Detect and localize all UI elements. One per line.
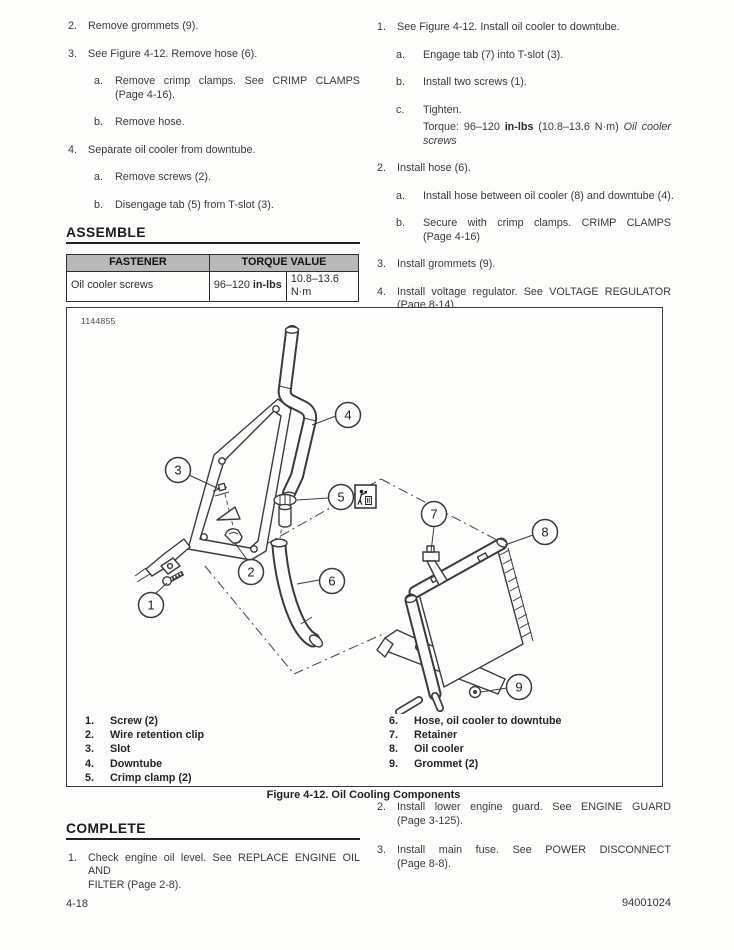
substep-line: Secure with crimp clamps. CRIMP CLAMPS: [423, 217, 671, 231]
step-line: (Page 8-8).: [397, 858, 671, 872]
step-install-hose: 2. Install hose (6).: [375, 162, 671, 176]
step-number: 4.: [68, 144, 77, 158]
legend-label: Oil cooler: [414, 742, 464, 756]
legend-number: 9.: [389, 757, 414, 771]
svg-text:4: 4: [344, 408, 351, 423]
legend-item: 6.Hose, oil cooler to downtube: [389, 714, 562, 728]
svg-text:8: 8: [541, 525, 548, 540]
document-number: 94001024: [375, 897, 671, 909]
step-number: 2.: [377, 162, 386, 176]
legend-item: 8.Oil cooler: [389, 742, 562, 756]
legend-number: 2.: [85, 728, 110, 742]
torque-us-range: 96–120: [214, 279, 253, 291]
assemble-section: ASSEMBLE FASTENER TORQUE VALUE Oil coole…: [66, 226, 360, 302]
torque-spec-line: Torque: 96–120 in-lbs (10.8–13.6 N·m) Oi…: [423, 121, 671, 148]
legend-number: 3.: [85, 742, 110, 756]
step-text: Install main fuse. See POWER DISCONNECT …: [397, 844, 671, 871]
legend-item: 7.Retainer: [389, 728, 562, 742]
substep-letter: a.: [396, 49, 405, 63]
discard-component-icon: [355, 485, 376, 508]
step-text: Remove grommets (9).: [88, 20, 360, 34]
step-line: Install voltage regulator. See VOLTAGE R…: [397, 286, 671, 300]
substep-letter: a.: [94, 171, 103, 185]
substep-text: Remove hose.: [115, 116, 360, 130]
step-number: 4.: [377, 286, 386, 300]
svg-text:6: 6: [328, 574, 335, 589]
figure-callout-6: 6: [320, 569, 345, 594]
step-text: Check engine oil level. See REPLACE ENGI…: [88, 852, 360, 893]
svg-text:9: 9: [515, 680, 522, 695]
legend-label: Retainer: [414, 728, 457, 742]
legend-number: 8.: [389, 742, 414, 756]
legend-label: Crimp clamp (2): [110, 771, 192, 785]
torque-table-header-fastener: FASTENER: [67, 254, 210, 271]
oil-hose: [271, 539, 325, 649]
figure-caption: Figure 4-12. Oil Cooling Components: [66, 789, 661, 801]
substep-line: (Page 4-16).: [115, 89, 360, 103]
legend-label: Hose, oil cooler to downtube: [414, 714, 562, 728]
step-number: 1.: [377, 21, 386, 35]
substep-text: Remove crimp clamps. See CRIMP CLAMPS (P…: [115, 75, 360, 102]
legend-number: 5.: [85, 771, 110, 785]
torque-unit: in-lbs: [505, 121, 534, 133]
substep-secure-crimp-clamps: b. Secure with crimp clamps. CRIMP CLAMP…: [375, 217, 671, 244]
substep-remove-hose: b. Remove hose.: [66, 116, 360, 130]
right-column: 1. See Figure 4-12. Install oil cooler t…: [375, 21, 671, 327]
step-line: (Page 3-125).: [397, 815, 671, 829]
legend-number: 7.: [389, 728, 414, 742]
substep-remove-crimp-clamps: a. Remove crimp clamps. See CRIMP CLAMPS…: [66, 75, 360, 102]
substep-tighten: c. Tighten. Torque: 96–120 in-lbs (10.8–…: [375, 104, 671, 149]
substep-letter: b.: [396, 76, 405, 90]
torque-us-unit: in-lbs: [253, 279, 282, 291]
torque-table-metric-cell: 10.8–13.6 N·m: [286, 271, 358, 301]
oil-cooling-exploded-diagram: 1 2 3 4 5 6 7 8 9: [67, 324, 659, 714]
substep-line: Remove crimp clamps. See CRIMP CLAMPS: [115, 75, 360, 89]
step-install-main-fuse: 3. Install main fuse. See POWER DISCONNE…: [375, 844, 671, 871]
substep-install-hose-between: a. Install hose between oil cooler (8) a…: [375, 190, 671, 204]
step-text: See Figure 4-12. Remove hose (6).: [88, 48, 360, 62]
step-remove-grommets: 2. Remove grommets (9).: [66, 20, 360, 34]
step-install-grommets: 3. Install grommets (9).: [375, 258, 671, 272]
left-column: 2. Remove grommets (9). 3. See Figure 4-…: [66, 20, 360, 302]
step-text: Install hose (6).: [397, 162, 671, 176]
substep-text: Tighten.: [423, 104, 671, 118]
grommet-part: [470, 687, 481, 698]
figure-callout-9: 9: [507, 675, 532, 700]
wire-retention-clip-part: [225, 529, 242, 543]
substep-text: Secure with crimp clamps. CRIMP CLAMPS (…: [423, 217, 671, 244]
right-bottom-column: 2. Install lower engine guard. See ENGIN…: [375, 801, 671, 885]
step-text: See Figure 4-12. Install oil cooler to d…: [397, 21, 671, 35]
legend-number: 1.: [85, 714, 110, 728]
svg-text:5: 5: [337, 490, 344, 505]
crimp-clamp-part: [274, 495, 296, 528]
complete-heading: COMPLETE: [66, 822, 360, 840]
step-check-oil-level: 1. Check engine oil level. See REPLACE E…: [66, 852, 360, 893]
step-number: 1.: [68, 852, 77, 866]
legend-item: 4.Downtube: [85, 757, 204, 771]
svg-text:1: 1: [147, 598, 154, 613]
step-text: Install grommets (9).: [397, 258, 671, 272]
step-separate-oil-cooler: 4. Separate oil cooler from downtube.: [66, 144, 360, 158]
legend-item: 2.Wire retention clip: [85, 728, 204, 742]
legend-item: 5.Crimp clamp (2): [85, 771, 204, 785]
torque-table-fastener-cell: Oil cooler screws: [67, 271, 210, 301]
torque-table-row: Oil cooler screws 96–120 in-lbs 10.8–13.…: [67, 271, 359, 301]
step-line: Install main fuse. See POWER DISCONNECT: [397, 844, 671, 858]
step-text: Install lower engine guard. See ENGINE G…: [397, 801, 671, 828]
torque-metric: (10.8–13.6 N·m): [533, 121, 623, 133]
torque-prefix: Torque: 96–120: [423, 121, 505, 133]
torque-table-us-cell: 96–120 in-lbs: [209, 271, 286, 301]
figure-callout-2: 2: [239, 560, 264, 585]
figure-legend-left: 1.Screw (2) 2.Wire retention clip 3.Slot…: [85, 714, 204, 785]
screw-part: [163, 573, 183, 585]
torque-table-header-value: TORQUE VALUE: [209, 254, 358, 271]
legend-label: Grommet (2): [414, 757, 478, 771]
svg-text:3: 3: [174, 463, 181, 478]
step-number: 3.: [68, 48, 77, 62]
substep-engage-tab: a. Engage tab (7) into T-slot (3).: [375, 49, 671, 63]
legend-label: Wire retention clip: [110, 728, 204, 742]
step-line: Install lower engine guard. See ENGINE G…: [397, 801, 671, 815]
legend-label: Screw (2): [110, 714, 158, 728]
svg-text:7: 7: [430, 507, 437, 522]
substep-letter: a.: [396, 190, 405, 204]
substep-text: Install two screws (1).: [423, 76, 671, 90]
substep-letter: c.: [396, 104, 404, 118]
substep-disengage-tab: b. Disengage tab (5) from T-slot (3).: [66, 199, 360, 213]
figure-4-12-box: 1144855: [66, 307, 663, 787]
legend-item: 1.Screw (2): [85, 714, 204, 728]
substep-remove-screws: a. Remove screws (2).: [66, 171, 360, 185]
step-number: 2.: [68, 20, 77, 34]
downtube-frame: [135, 399, 291, 582]
legend-item: 3.Slot: [85, 742, 204, 756]
assemble-heading: ASSEMBLE: [66, 226, 360, 244]
legend-label: Downtube: [110, 757, 162, 771]
complete-section: COMPLETE 1. Check engine oil level. See …: [66, 822, 360, 906]
substep-install-screws: b. Install two screws (1).: [375, 76, 671, 90]
figure-callout-7: 7: [422, 502, 447, 527]
substep-letter: b.: [94, 199, 103, 213]
substep-text: Disengage tab (5) from T-slot (3).: [115, 199, 360, 213]
figure-callout-8: 8: [533, 520, 558, 545]
step-number: 3.: [377, 258, 386, 272]
figure-legend-right: 6.Hose, oil cooler to downtube 7.Retaine…: [389, 714, 562, 771]
legend-item: 9.Grommet (2): [389, 757, 562, 771]
substep-letter: a.: [94, 75, 103, 89]
step-line: FILTER (Page 2-8).: [88, 879, 360, 893]
figure-callout-3: 3: [166, 458, 191, 483]
substep-text: Remove screws (2).: [115, 171, 360, 185]
substep-text: Install hose between oil cooler (8) and …: [423, 190, 671, 204]
step-number: 3.: [377, 844, 386, 858]
svg-text:2: 2: [247, 565, 254, 580]
page-number: 4-18: [66, 898, 88, 910]
substep-letter: b.: [396, 217, 405, 231]
legend-label: Slot: [110, 742, 130, 756]
legend-number: 4.: [85, 757, 110, 771]
figure-callout-5: 5: [329, 485, 354, 510]
step-install-oil-cooler: 1. See Figure 4-12. Install oil cooler t…: [375, 21, 671, 35]
substep-line: (Page 4-16): [423, 231, 671, 245]
step-number: 2.: [377, 801, 386, 815]
substep-letter: b.: [94, 116, 103, 130]
step-install-engine-guard: 2. Install lower engine guard. See ENGIN…: [375, 801, 671, 828]
step-line: Check engine oil level. See REPLACE ENGI…: [88, 852, 360, 879]
legend-number: 6.: [389, 714, 414, 728]
step-text: Separate oil cooler from downtube.: [88, 144, 360, 158]
figure-callout-1: 1: [139, 593, 164, 618]
figure-callout-4: 4: [336, 403, 361, 428]
torque-table: FASTENER TORQUE VALUE Oil cooler screws …: [66, 254, 359, 302]
substep-text: Engage tab (7) into T-slot (3).: [423, 49, 671, 63]
step-remove-hose: 3. See Figure 4-12. Remove hose (6).: [66, 48, 360, 62]
